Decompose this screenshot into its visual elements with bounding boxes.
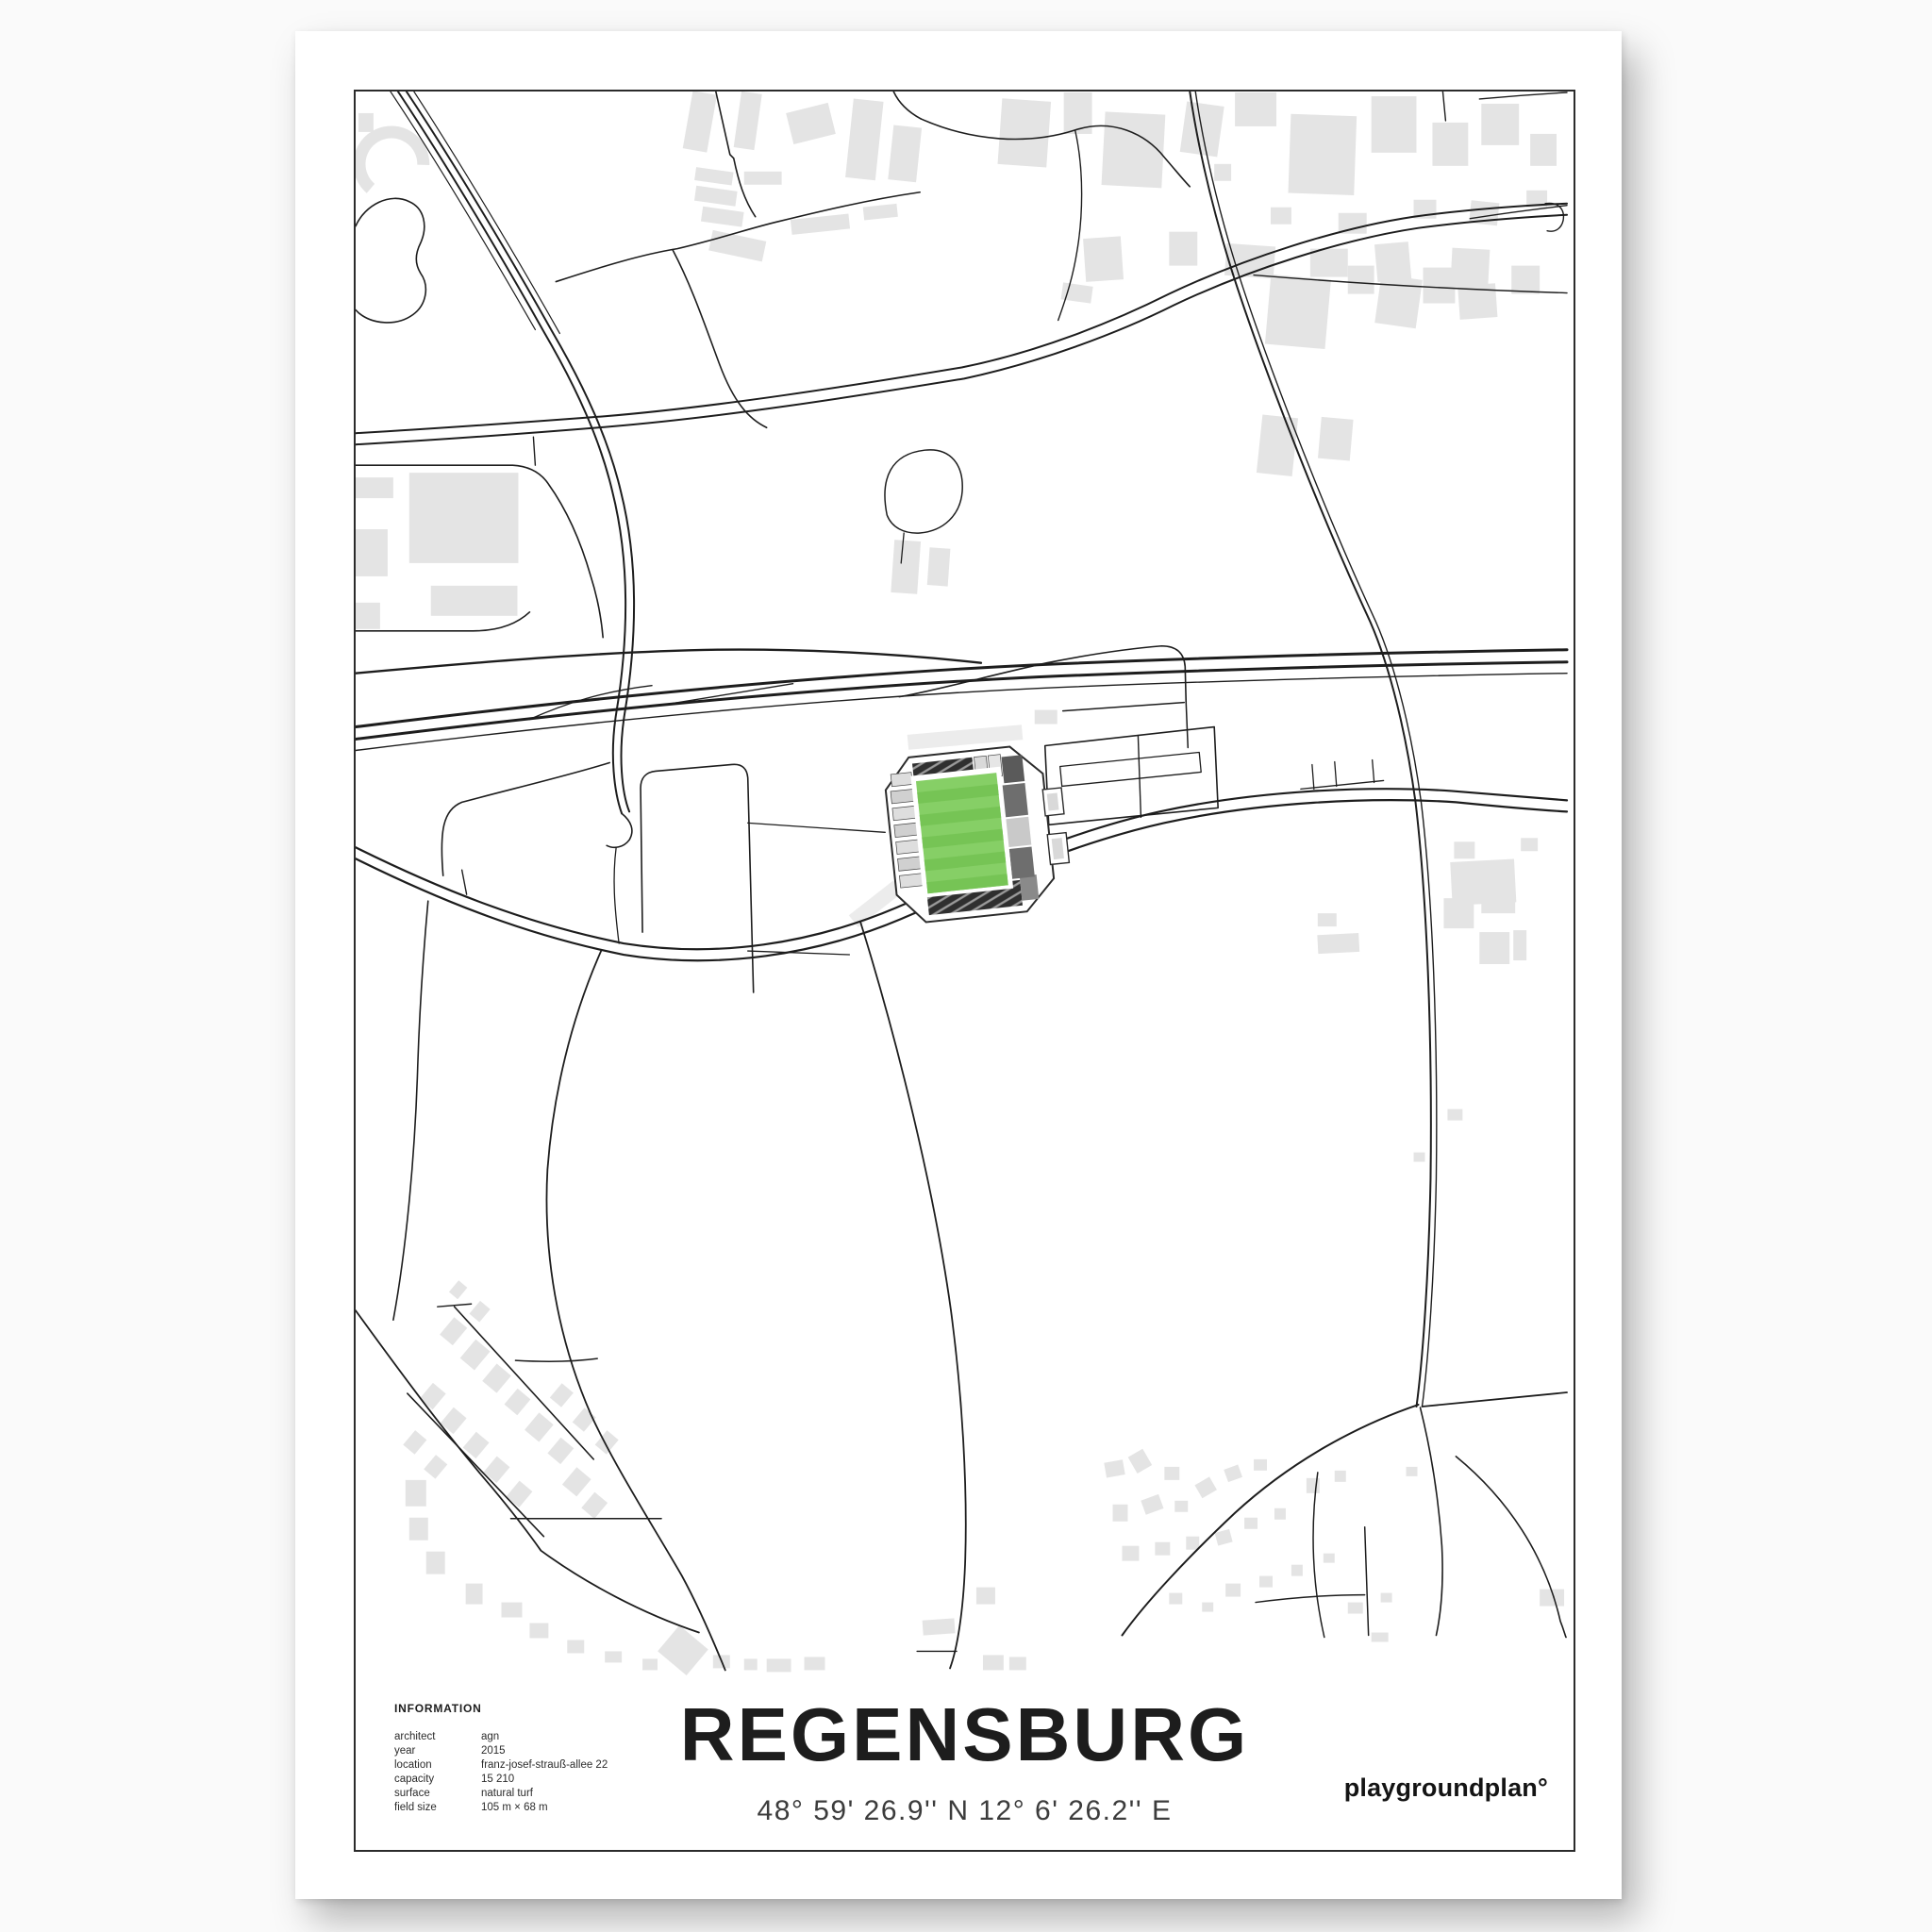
arc-building [359,132,424,189]
map-frame [354,90,1575,1852]
stadium-map-svg [356,92,1574,1850]
info-label: capacity [394,1773,481,1787]
stadium [883,741,1074,924]
pond-outline [356,198,425,323]
poster-title: REGENSBURG [354,1697,1575,1773]
info-row: capacity15 210 [394,1773,608,1787]
brand-logo: playgroundplan° [1344,1775,1548,1801]
stadium-map-poster: INFORMATION architectagn year2015 locati… [295,31,1622,1899]
info-value: 15 210 [481,1773,608,1787]
